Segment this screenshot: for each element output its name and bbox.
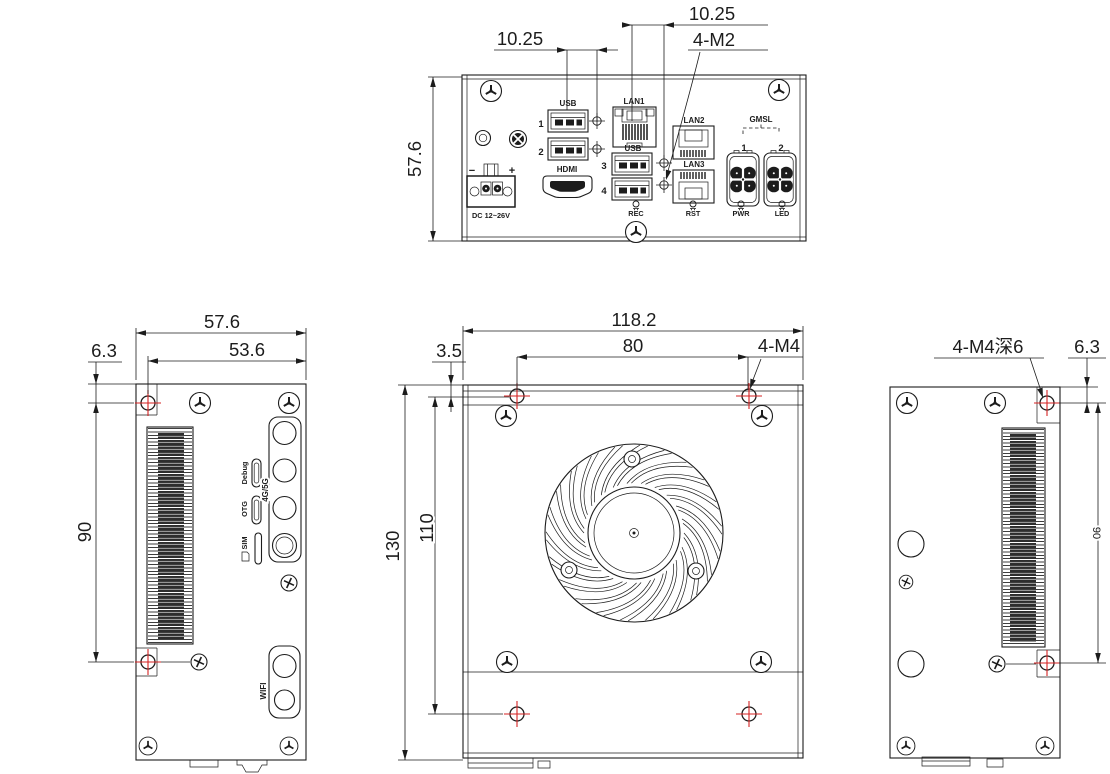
screw-icon [897, 737, 915, 755]
led-label: LED [775, 209, 790, 218]
dc-rating-label: DC 12~26V [472, 211, 510, 220]
rec-label: REC [628, 209, 644, 218]
mounting-hole-marker [736, 701, 762, 727]
dim-left-width-label: 57.6 [204, 311, 240, 332]
usb-port-2 [548, 138, 588, 160]
dim-right-edge-offset: 6.3 [1059, 336, 1106, 413]
hdmi-port [543, 176, 592, 198]
screw-icon [191, 654, 207, 670]
dim-top-width-label: 118.2 [612, 309, 657, 330]
top-view [463, 383, 803, 768]
dim-usb-offset-right-label: 10.25 [689, 3, 735, 24]
dim-left-hole-to-edge-label: 53.6 [229, 339, 265, 360]
grounding-screw-icon [510, 131, 527, 148]
screw-icon [497, 652, 518, 673]
antenna-hole [273, 459, 296, 482]
note-4-m4-depth: 4-M4深6 [934, 336, 1046, 399]
antenna-hole [898, 651, 924, 677]
fan-screw-boss [688, 563, 704, 579]
screw-icon [190, 393, 211, 414]
dim-top-depth: 130 [382, 385, 463, 760]
dim-left-edge-offset-label: 6.3 [91, 340, 117, 361]
dim-left-edge-offset: 6.3 [88, 340, 136, 662]
debug-usbc-port [252, 459, 261, 487]
gmsl-connector-1 [727, 151, 759, 207]
note-4-m4: 4-M4 [747, 335, 800, 390]
dc-plus-label: + [509, 165, 515, 177]
pwr-label: PWR [732, 209, 750, 218]
bottom-tabs [190, 760, 267, 772]
antenna-hole [898, 531, 924, 557]
heatsink-fins-left-core [158, 433, 184, 639]
screw-icon [280, 737, 298, 755]
lan2-label: LAN2 [684, 116, 705, 125]
antenna-hole [275, 690, 295, 710]
lan3-port [673, 170, 714, 203]
usb-group-label: USB [560, 99, 577, 108]
screw-icon [496, 406, 517, 427]
screw-icon [752, 406, 773, 427]
sim-card-icon [242, 552, 249, 561]
mounting-hole-marker [1034, 390, 1060, 416]
front-panel-view: − + DC 12~26V HDMI USB 1 2 LAN1 USB 3 4 [462, 75, 806, 243]
screw-icon [899, 575, 913, 589]
mounting-hole-marker [504, 701, 530, 727]
fan-screw-boss [561, 562, 577, 578]
otg-usbc-port [252, 496, 261, 524]
gmsl1-number: 1 [741, 143, 747, 154]
usb-port1-number: 1 [538, 119, 544, 130]
dim-usb-offset-left-label: 10.25 [497, 28, 543, 49]
screw-icon [279, 393, 300, 414]
antenna-hole [273, 497, 296, 520]
wifi-label: WIFI [259, 683, 268, 700]
gmsl-label: GMSL [749, 115, 772, 124]
dim-right-hole-span: 90 [1059, 403, 1106, 663]
note-4-m2-label: 4-M2 [693, 29, 735, 50]
note-4-m4-label: 4-M4 [758, 335, 800, 356]
screw-icon [1036, 737, 1054, 755]
grounding-ring-icon [476, 131, 491, 146]
sim-slot-label: SIM [240, 537, 249, 550]
lan3-label: LAN3 [684, 160, 705, 169]
dim-right-hole-span-label: 90 [1090, 527, 1102, 539]
m2-hole-marker [656, 177, 672, 193]
antenna-hole [273, 422, 296, 445]
m2-hole-marker [589, 141, 605, 157]
usb-port-4 [612, 178, 652, 200]
heatsink-fins-right-core [1010, 434, 1036, 642]
dc-minus-label: − [469, 165, 475, 177]
screw-icon [281, 575, 297, 591]
sim-slot [255, 533, 262, 564]
usb-port4-number: 4 [601, 186, 607, 197]
note-4-m4-depth-label: 4-M4深6 [953, 336, 1024, 357]
gmsl2-number: 2 [778, 143, 783, 154]
screw-icon [751, 652, 772, 673]
technical-drawing-page: − + DC 12~26V HDMI USB 1 2 LAN1 USB 3 4 [0, 0, 1110, 774]
drawing-canvas: − + DC 12~26V HDMI USB 1 2 LAN1 USB 3 4 [0, 0, 1110, 774]
fan-screw-boss [624, 451, 640, 467]
usb-port-3 [612, 153, 652, 175]
dim-left-hole-span: 90 [74, 522, 99, 662]
hdmi-label: HDMI [557, 165, 577, 174]
gmsl-bracket [743, 124, 779, 134]
cooling-fan [545, 444, 723, 622]
dim-top-edge-offset-label: 3.5 [436, 340, 462, 361]
usb-port-1 [548, 110, 588, 132]
dim-left-hole-to-edge: 53.6 [148, 339, 306, 394]
dim-front-height-label: 57.6 [404, 141, 425, 177]
cellular-label: 4G/5G [261, 478, 270, 502]
lan1-port [613, 107, 656, 147]
bottom-tabs [468, 758, 550, 768]
screw-icon [139, 737, 157, 755]
dim-left-width: 57.6 [136, 311, 306, 380]
front-screw-top-right-icon [769, 80, 790, 101]
lan1-label: LAN1 [624, 97, 645, 106]
rst-label: RST [686, 209, 701, 218]
dim-top-depth-label: 130 [382, 531, 403, 562]
screw-icon [989, 656, 1005, 672]
debug-port-label: Debug [240, 462, 249, 485]
front-screw-bottom-icon [626, 222, 647, 243]
cellular-antenna-plate [269, 417, 301, 562]
antenna-hole [273, 655, 296, 678]
usb-port2-number: 2 [538, 147, 543, 158]
gmsl-connector-2 [764, 151, 796, 207]
usb-group2-label: USB [625, 144, 642, 153]
dim-left-hole-span-label: 90 [74, 522, 95, 543]
usb-port3-number: 3 [601, 161, 606, 172]
dim-top-edge-offset: 3.5 [398, 340, 509, 412]
front-screw-top-left-icon [481, 81, 502, 102]
dim-top-hole-span-label: 80 [623, 335, 644, 356]
mounting-hole-marker [1034, 650, 1060, 676]
wifi-antenna-plate [269, 646, 300, 718]
screw-icon [985, 393, 1006, 414]
otg-port-label: OTG [240, 501, 249, 517]
dim-top-hole-depth-label: 110 [416, 513, 437, 543]
dim-top-hole-depth-span: 110 [416, 397, 503, 714]
dim-right-edge-offset-label: 6.3 [1074, 336, 1100, 357]
screw-icon [897, 393, 918, 414]
dim-front-height: 57.6 [404, 77, 462, 241]
